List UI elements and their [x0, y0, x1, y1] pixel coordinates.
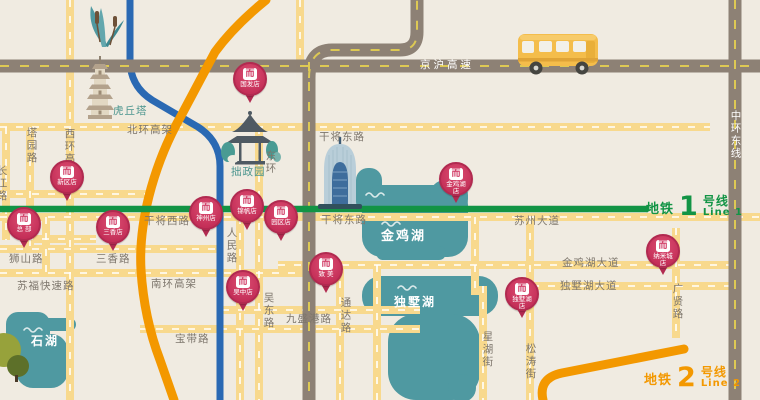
map-label: 中环东线: [729, 110, 741, 160]
map-label: 广贤路: [671, 283, 683, 321]
reeds-icon: [90, 6, 124, 47]
map-label: 南环高架: [151, 279, 197, 291]
map-label: 松涛街: [524, 343, 536, 381]
map-label: 苏州大道: [514, 216, 560, 228]
store-pin-label: 园区店: [266, 219, 296, 226]
map-label: 干将东路: [321, 215, 367, 227]
store-pin-label: 纳米城店: [648, 253, 678, 267]
map-label: 九盛港路: [286, 314, 332, 326]
brand-logo-icon: 而: [199, 202, 213, 214]
store-pin[interactable]: 而三香店: [95, 210, 131, 251]
pin-bubble: 而三香店: [96, 210, 130, 244]
pin-bubble: 而金鸡湖店: [439, 162, 473, 196]
map-label: 京沪高速: [420, 60, 474, 72]
map-label: 宝带路: [175, 334, 210, 346]
gate-of-east-icon: [318, 137, 362, 209]
map-label: 通达路: [339, 297, 351, 335]
store-pin-label: 三香店: [98, 229, 128, 236]
brand-logo-icon: 而: [60, 166, 74, 178]
store-pin-label: 锦帆店: [232, 208, 262, 215]
map-label: 吴东路: [262, 292, 274, 330]
legend-1-number: 1: [679, 195, 698, 219]
store-pin[interactable]: 而金鸡湖店: [438, 162, 474, 203]
brand-logo-icon: 而: [274, 206, 288, 218]
legend-2-sub: Line 2: [701, 379, 741, 390]
brand-logo-icon: 而: [240, 195, 254, 207]
map-label: 独墅湖大道: [560, 281, 618, 293]
pin-bubble: 而园区店: [264, 200, 298, 234]
metro-line-2-legend: 地铁 2 号线 Line 2: [644, 366, 741, 390]
map-label: 苏福快速路: [17, 281, 75, 293]
map-label: 东环: [264, 150, 276, 175]
brand-logo-icon: 而: [656, 240, 670, 252]
store-pin[interactable]: 而园区店: [263, 200, 299, 241]
map-label: 塔园路: [25, 127, 37, 165]
store-pin-label: 独墅湖店: [507, 296, 537, 310]
pin-bubble: 而致 美: [309, 252, 343, 286]
legend-1-sub: Line 1: [703, 208, 743, 219]
pin-bubble: 而神州店: [189, 196, 223, 230]
map-label: 干将东路: [319, 132, 365, 144]
pin-bubble: 而新区店: [50, 160, 84, 194]
map-label: 拙政园: [231, 167, 266, 179]
store-pin[interactable]: 而纳米城店: [645, 234, 681, 275]
legend-1-prefix: 地铁: [646, 198, 674, 217]
map-label: 干将西路: [144, 216, 190, 228]
brand-logo-icon: 而: [319, 258, 333, 270]
suzhou-store-map: 地铁 1 号线 Line 1 地铁 2 号线 Line 2 北环高架干将东路虎丘…: [0, 0, 760, 400]
metro-line-1-legend: 地铁 1 号线 Line 1: [646, 195, 743, 219]
pin-bubble: 而吴中店: [226, 270, 260, 304]
store-pin-label: 神州店: [191, 215, 221, 222]
store-pin-label: 新区店: [52, 179, 82, 186]
store-pin-label: 致 美: [311, 271, 341, 278]
map-label: 虎丘塔: [113, 106, 148, 118]
store-pin-label: 金鸡湖店: [441, 181, 471, 195]
brand-logo-icon: 而: [515, 283, 529, 295]
map-label: 独墅湖: [394, 296, 436, 309]
map-label: 长江路: [0, 165, 7, 203]
store-pin[interactable]: 而国发店: [232, 62, 268, 103]
brand-logo-icon: 而: [449, 168, 463, 180]
map-label: 北环高架: [127, 125, 173, 137]
map-label: 人民路: [225, 227, 237, 265]
map-label: 金鸡湖: [381, 230, 426, 244]
store-pin[interactable]: 而神州店: [188, 196, 224, 237]
store-pin[interactable]: 而锦帆店: [229, 189, 265, 230]
store-pin[interactable]: 而总 部: [6, 207, 42, 248]
pin-bubble: 而纳米城店: [646, 234, 680, 268]
brand-logo-icon: 而: [236, 276, 250, 288]
store-pin[interactable]: 而新区店: [49, 160, 85, 201]
brand-logo-icon: 而: [243, 68, 257, 80]
map-label: 金鸡湖大道: [562, 258, 620, 270]
store-pin-label: 吴中店: [228, 289, 258, 296]
map-label: 星湖街: [481, 331, 493, 369]
pin-bubble: 而总 部: [7, 207, 41, 241]
store-pin[interactable]: 而独墅湖店: [504, 277, 540, 318]
pin-bubble: 而独墅湖店: [505, 277, 539, 311]
store-pin[interactable]: 而吴中店: [225, 270, 261, 311]
store-pin-label: 总 部: [9, 226, 39, 233]
store-pin[interactable]: 而致 美: [308, 252, 344, 293]
map-label: 石湖: [31, 335, 59, 348]
store-pin-label: 国发店: [235, 81, 265, 88]
pin-bubble: 而国发店: [233, 62, 267, 96]
brand-logo-icon: 而: [17, 213, 31, 225]
map-label: 三香路: [96, 254, 131, 266]
map-label: 狮山路: [9, 254, 44, 266]
brand-logo-icon: 而: [106, 216, 120, 228]
pin-bubble: 而锦帆店: [230, 189, 264, 223]
legend-2-number: 2: [677, 366, 696, 390]
legend-2-prefix: 地铁: [644, 369, 672, 388]
